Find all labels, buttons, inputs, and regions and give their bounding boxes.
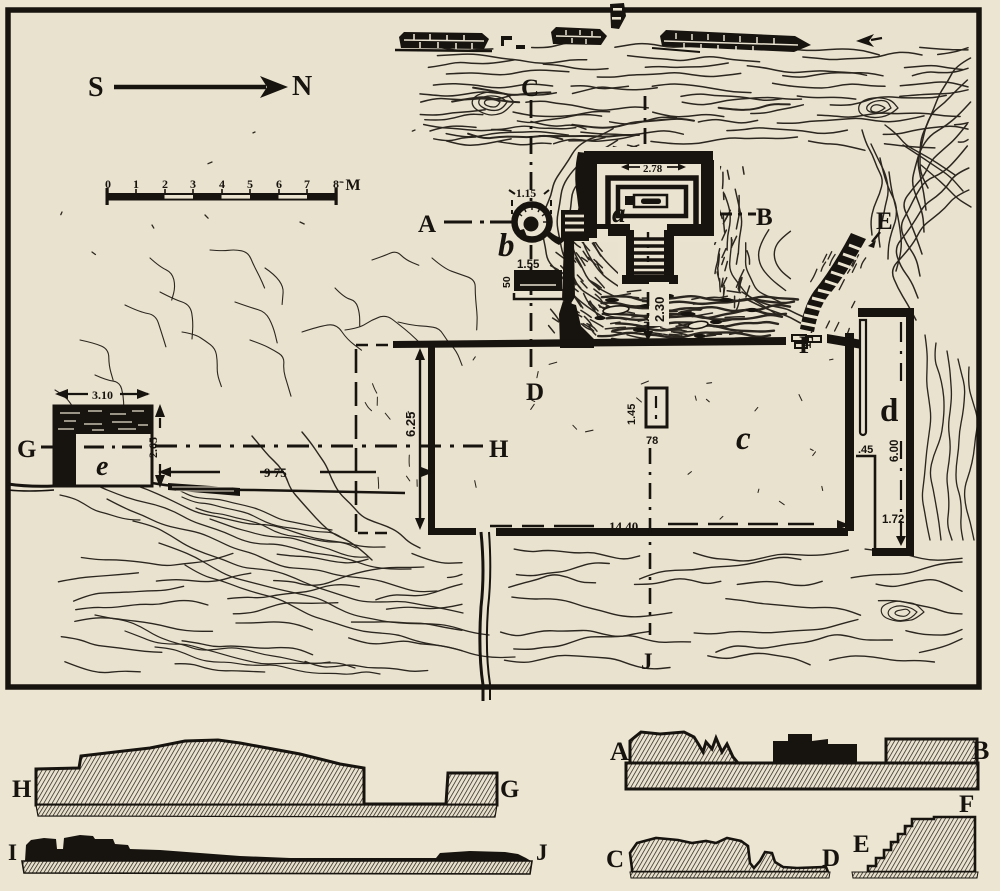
svg-text:2.78: 2.78 [643,163,663,175]
svg-text:1.55: 1.55 [517,259,540,271]
svg-text:C: C [521,75,539,102]
svg-text:50: 50 [501,276,513,288]
svg-text:78: 78 [646,435,658,447]
svg-text:B: B [972,736,989,765]
svg-text:F: F [799,332,814,359]
svg-text:E: E [853,831,870,858]
svg-text:A: A [418,211,436,238]
svg-text:N: N [292,71,312,102]
svg-text:4: 4 [219,177,225,191]
svg-text:6.00: 6.00 [889,440,901,462]
svg-text:14 40: 14 40 [609,519,638,534]
svg-text:I: I [8,840,17,865]
svg-text:C: C [606,846,624,873]
svg-text:G: G [500,776,519,803]
svg-text:e: e [96,451,108,482]
svg-text:1.45: 1.45 [626,404,638,425]
svg-text:6.25: 6.25 [403,412,418,437]
svg-text:1.15: 1.15 [516,188,536,200]
svg-text:.45: .45 [858,444,873,456]
svg-text:d: d [880,393,898,429]
svg-text:b: b [498,228,515,264]
svg-text:1.72: 1.72 [882,514,904,526]
svg-text:G: G [17,436,36,463]
svg-text:3: 3 [190,177,196,191]
svg-text:D: D [526,379,544,406]
svg-text:J: J [536,840,548,865]
svg-text:c: c [736,421,751,457]
svg-text:5: 5 [247,177,253,191]
svg-text:F: F [959,791,974,818]
svg-text:M: M [345,177,360,194]
svg-text:a: a [612,198,626,228]
svg-text:B: B [756,204,773,231]
svg-text:6: 6 [276,177,282,191]
svg-text:D: D [822,845,840,872]
svg-text:E: E [876,208,893,235]
svg-text:S: S [88,72,104,103]
svg-text:2: 2 [162,177,168,191]
svg-text:2.65: 2.65 [146,437,160,458]
svg-text:9 75: 9 75 [264,465,287,480]
svg-text:2.30: 2.30 [652,297,667,322]
svg-text:H: H [12,776,32,803]
svg-text:3.10: 3.10 [92,388,113,402]
svg-text:7: 7 [304,177,310,191]
svg-text:H: H [489,436,509,463]
svg-text:1: 1 [133,177,139,191]
svg-text:J: J [641,649,653,674]
